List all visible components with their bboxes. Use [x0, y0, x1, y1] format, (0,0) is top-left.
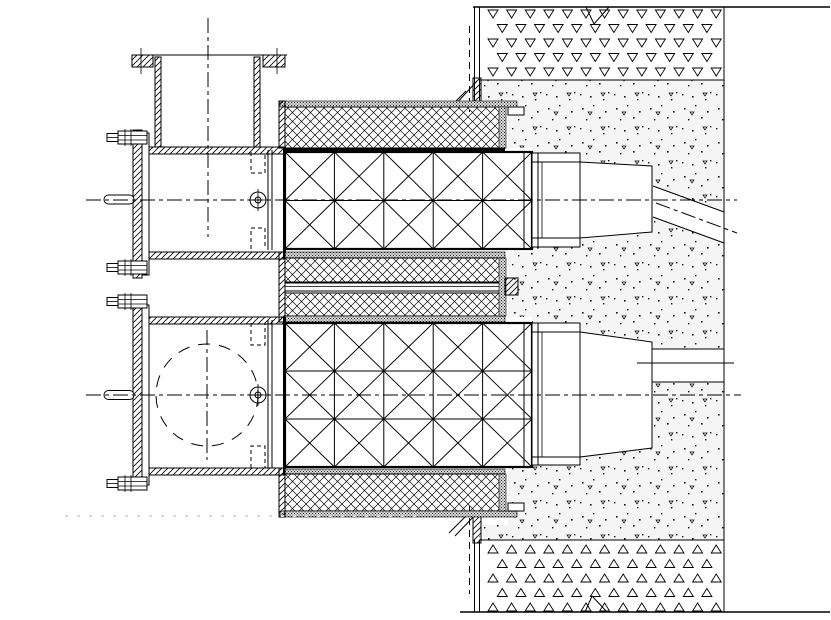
bottom-cover-plate-top: [285, 469, 505, 474]
top-cover-plate: [280, 101, 517, 107]
lower-chamber-top-wall: [149, 317, 284, 324]
middle-insulation-lower: [285, 293, 505, 316]
cad-canvas: [0, 0, 831, 620]
middle-anchor-bracket: [505, 278, 518, 295]
concrete-fill-top: [479, 80, 724, 103]
bolt-plate: [118, 131, 147, 144]
middle-left-cap: [279, 252, 285, 322]
insulation-block-top: [279, 101, 524, 150]
pipe-flange-ear-right: [263, 55, 285, 67]
bottom-insulation: [285, 474, 505, 511]
pipe-flange-ear-left: [132, 55, 153, 67]
bottom-cover-plate: [280, 511, 517, 517]
lower-pipe-bore: [652, 349, 724, 382]
insulation-block-bottom: [279, 468, 524, 517]
concrete-fill-bottom: [479, 525, 724, 540]
middle-cover-plate-top: [285, 252, 505, 258]
pipe-wall-left: [155, 57, 161, 147]
lower-collar: [532, 323, 580, 465]
bolt-plate: [118, 261, 147, 274]
drawing-root: [0, 0, 831, 620]
bottom-wall-step: [508, 503, 524, 511]
top-insulation-left-cap: [279, 101, 285, 148]
upper-left-flange-plate: [133, 130, 142, 278]
top-insulation: [285, 107, 505, 148]
pipe-wall-right: [254, 57, 260, 147]
lower-collar-body: [532, 323, 580, 465]
top-wall-step: [508, 107, 524, 115]
bottom-insulation-left-cap: [279, 468, 285, 517]
lower-cone: [580, 332, 652, 457]
upper-chamber-top-wall: [149, 147, 284, 154]
bolt-plate: [118, 477, 147, 490]
middle-insulation-upper: [285, 258, 505, 282]
bolt-plate: [118, 295, 147, 308]
upper-cone: [580, 162, 652, 238]
top-insulation-right-cap: [499, 107, 506, 148]
bottom-insulation-right-cap: [499, 474, 506, 511]
upper-left-backing-plate: [142, 133, 149, 275]
middle-cover-plate-bottom: [285, 316, 505, 322]
upper-chamber-bottom-wall: [149, 252, 284, 259]
section-drawing: [0, 0, 831, 620]
lower-chamber-bottom-wall: [149, 468, 284, 475]
